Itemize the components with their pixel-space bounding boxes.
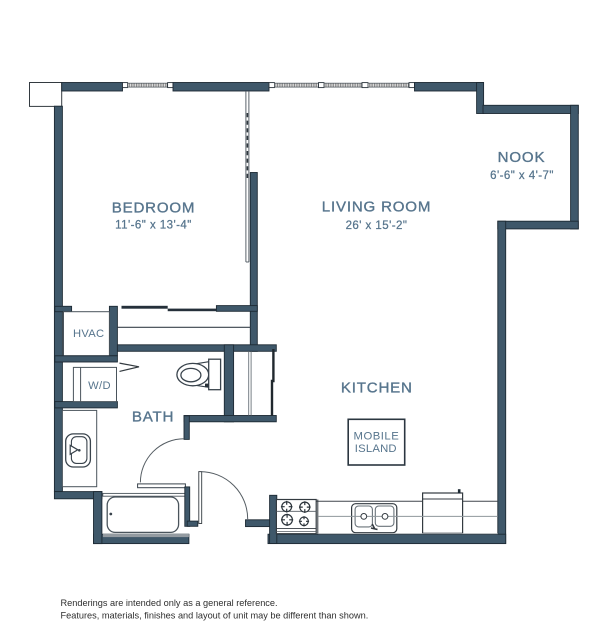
- svg-text:W/D: W/D: [88, 380, 111, 392]
- svg-text:HVAC: HVAC: [73, 328, 104, 340]
- svg-text:MOBILE: MOBILE: [354, 430, 400, 442]
- svg-text:NOOK: NOOK: [498, 149, 546, 166]
- svg-text:LIVING ROOM: LIVING ROOM: [322, 199, 431, 216]
- svg-text:Features, materials, finishes: Features, materials, finishes and layout…: [61, 610, 369, 620]
- svg-text:6'-6" x 4'-7": 6'-6" x 4'-7": [490, 170, 554, 182]
- svg-text:ISLAND: ISLAND: [355, 443, 397, 455]
- svg-text:11'-6" x 13'-4": 11'-6" x 13'-4": [115, 220, 192, 232]
- svg-text:KITCHEN: KITCHEN: [341, 380, 413, 397]
- svg-text:Renderings are intended only a: Renderings are intended only as a genera…: [61, 598, 278, 608]
- svg-text:26' x 15'-2": 26' x 15'-2": [346, 220, 408, 232]
- svg-text:BATH: BATH: [132, 409, 174, 426]
- svg-text:BEDROOM: BEDROOM: [112, 200, 196, 217]
